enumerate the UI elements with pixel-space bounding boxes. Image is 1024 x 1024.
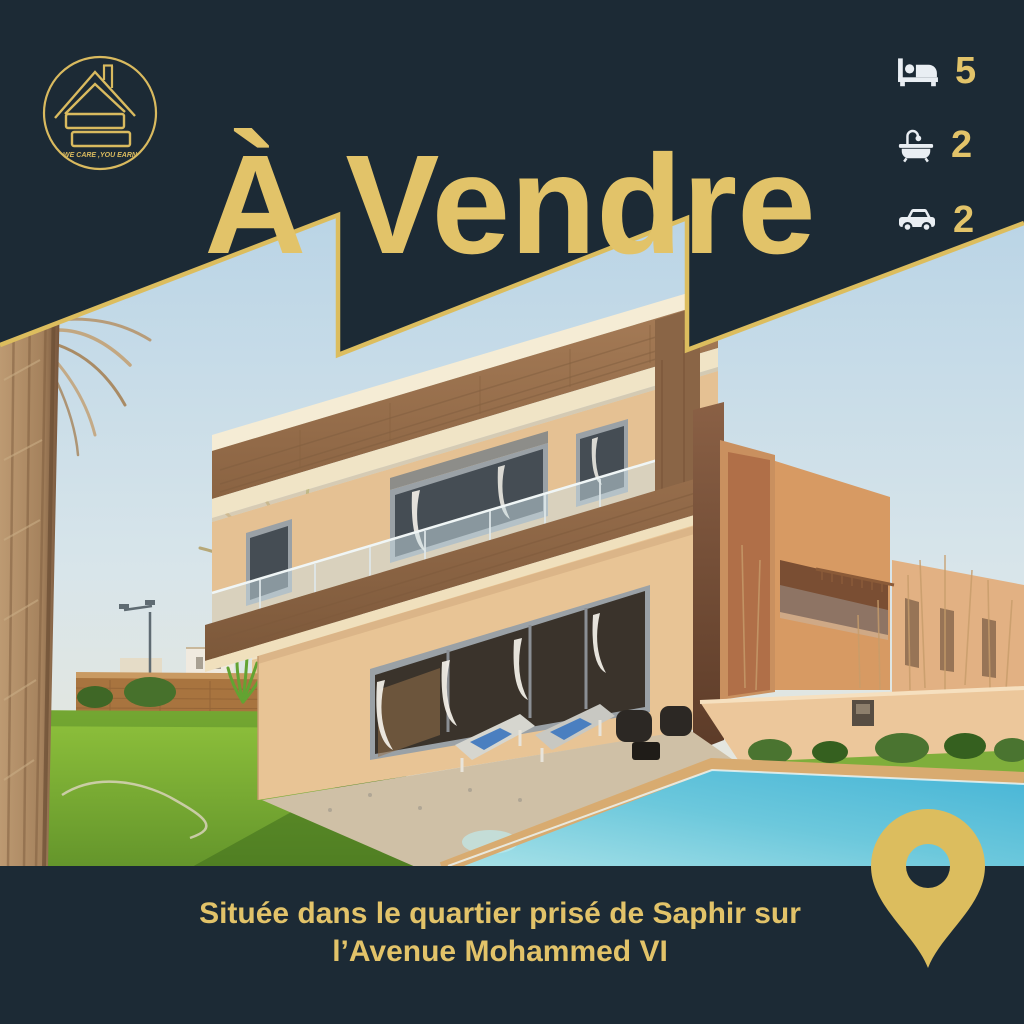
- car-icon: [897, 205, 937, 235]
- bathrooms-count: 2: [951, 124, 972, 166]
- real-estate-flyer: WE CARE ,YOU EARN À Vendre 5: [0, 0, 1024, 1024]
- spec-bathrooms: 2: [897, 124, 972, 166]
- bathtub-icon: [897, 127, 935, 163]
- parking-count: 2: [953, 199, 974, 241]
- property-specs: 5 2 2: [0, 0, 1024, 300]
- address-line-1: Située dans le quartier prisé de Saphir …: [90, 895, 910, 933]
- property-address: Située dans le quartier prisé de Saphir …: [90, 895, 910, 971]
- address-line-2: l’Avenue Mohammed VI: [90, 933, 910, 971]
- bed-icon: [897, 55, 939, 87]
- spec-bedrooms: 5: [897, 50, 976, 92]
- spec-parking: 2: [897, 199, 974, 241]
- bedrooms-count: 5: [955, 50, 976, 92]
